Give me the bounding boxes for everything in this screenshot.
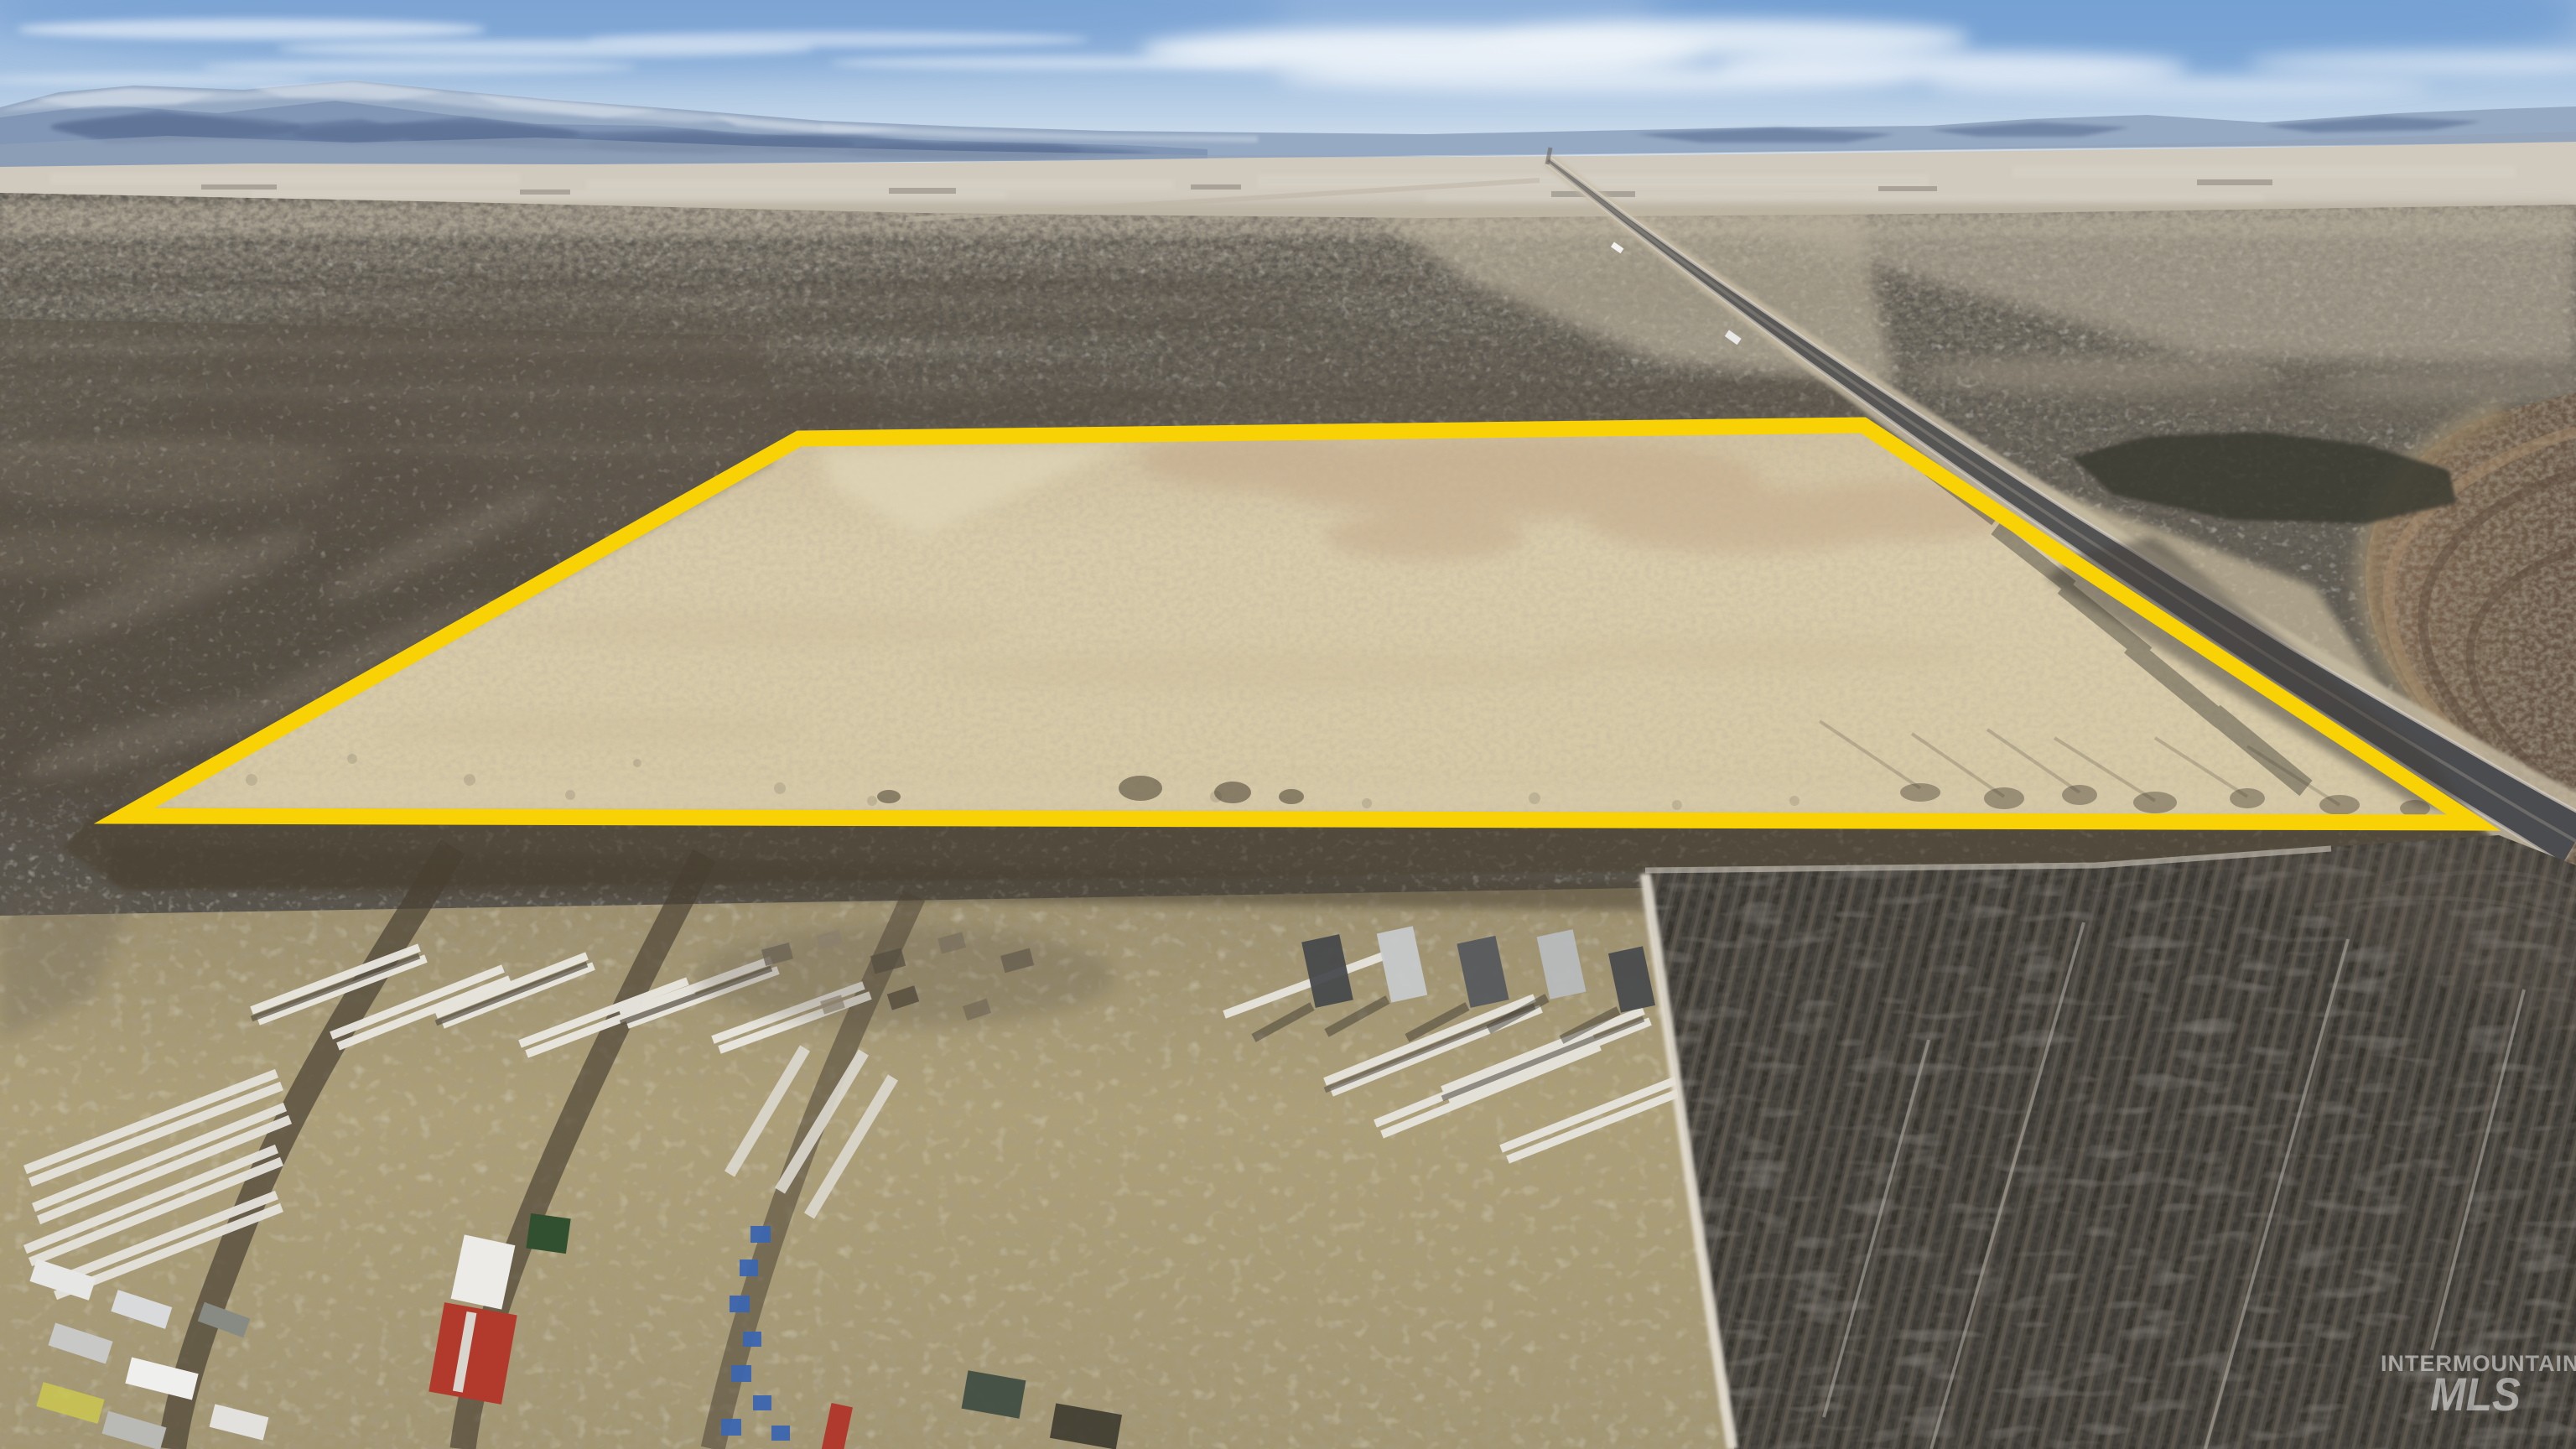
svg-text:MLS: MLS — [2430, 1368, 2521, 1420]
